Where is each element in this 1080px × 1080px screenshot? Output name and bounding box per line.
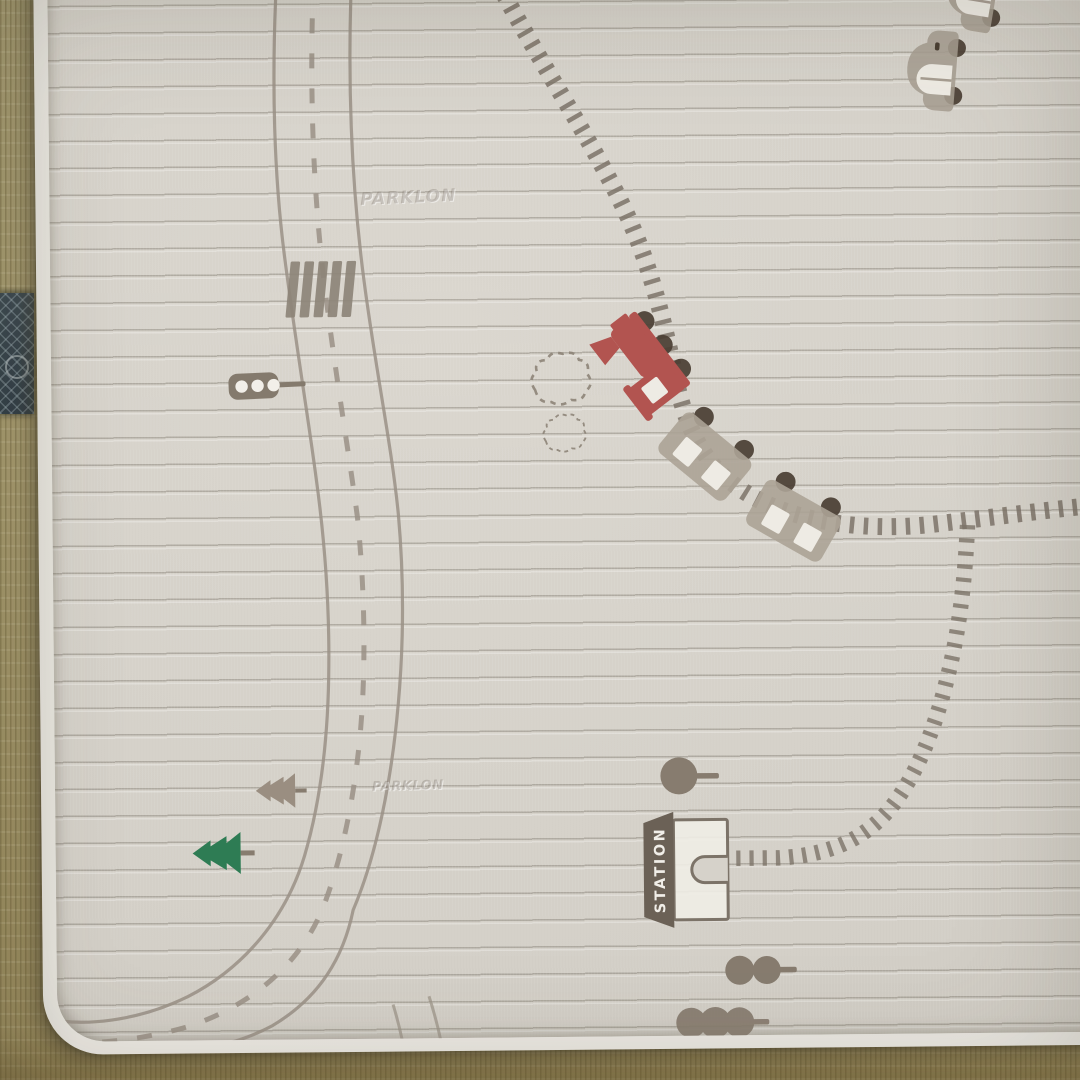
brand-watermark: PARKLON PARKLON xyxy=(372,778,445,796)
road-bottom-stub xyxy=(429,996,447,1042)
road-right-edge xyxy=(47,0,407,1042)
smoke-puff-icon xyxy=(543,414,586,452)
pine-tree-green-icon xyxy=(192,832,254,875)
railway-branch-track xyxy=(726,525,971,858)
station-sign-text: STATION xyxy=(652,827,669,914)
traffic-light-icon xyxy=(228,371,306,400)
car-icon xyxy=(904,28,967,112)
mat-artwork: STATION xyxy=(47,0,1080,1042)
ball-tree-icon xyxy=(676,1006,769,1038)
pine-tree-taupe-icon xyxy=(256,773,307,808)
ball-tree-icon xyxy=(725,955,797,985)
train-wagon-icon xyxy=(743,465,850,565)
tatami-border-band xyxy=(0,293,34,414)
station-door xyxy=(692,856,728,882)
play-mat: STATION xyxy=(33,0,1080,1055)
photo-scene: STATION xyxy=(0,0,1080,1080)
lollipop-tree-icon xyxy=(660,757,719,795)
railway-main-track xyxy=(497,0,1080,530)
car-icon xyxy=(941,0,1010,35)
station-building-icon: STATION xyxy=(643,811,728,928)
mat-surface: STATION xyxy=(47,0,1080,1042)
road-centerline xyxy=(47,0,368,1042)
svg-text:PARKLON: PARKLON xyxy=(360,186,457,210)
brand-watermark: PARKLON PARKLON xyxy=(360,186,458,211)
road xyxy=(47,0,447,1042)
smoke-puff-icon xyxy=(531,353,591,405)
road-bottom-stub xyxy=(393,1004,408,1041)
crosswalk-icon xyxy=(285,261,356,318)
road-left-edge xyxy=(47,0,332,1023)
svg-text:PARKLON: PARKLON xyxy=(372,778,444,795)
